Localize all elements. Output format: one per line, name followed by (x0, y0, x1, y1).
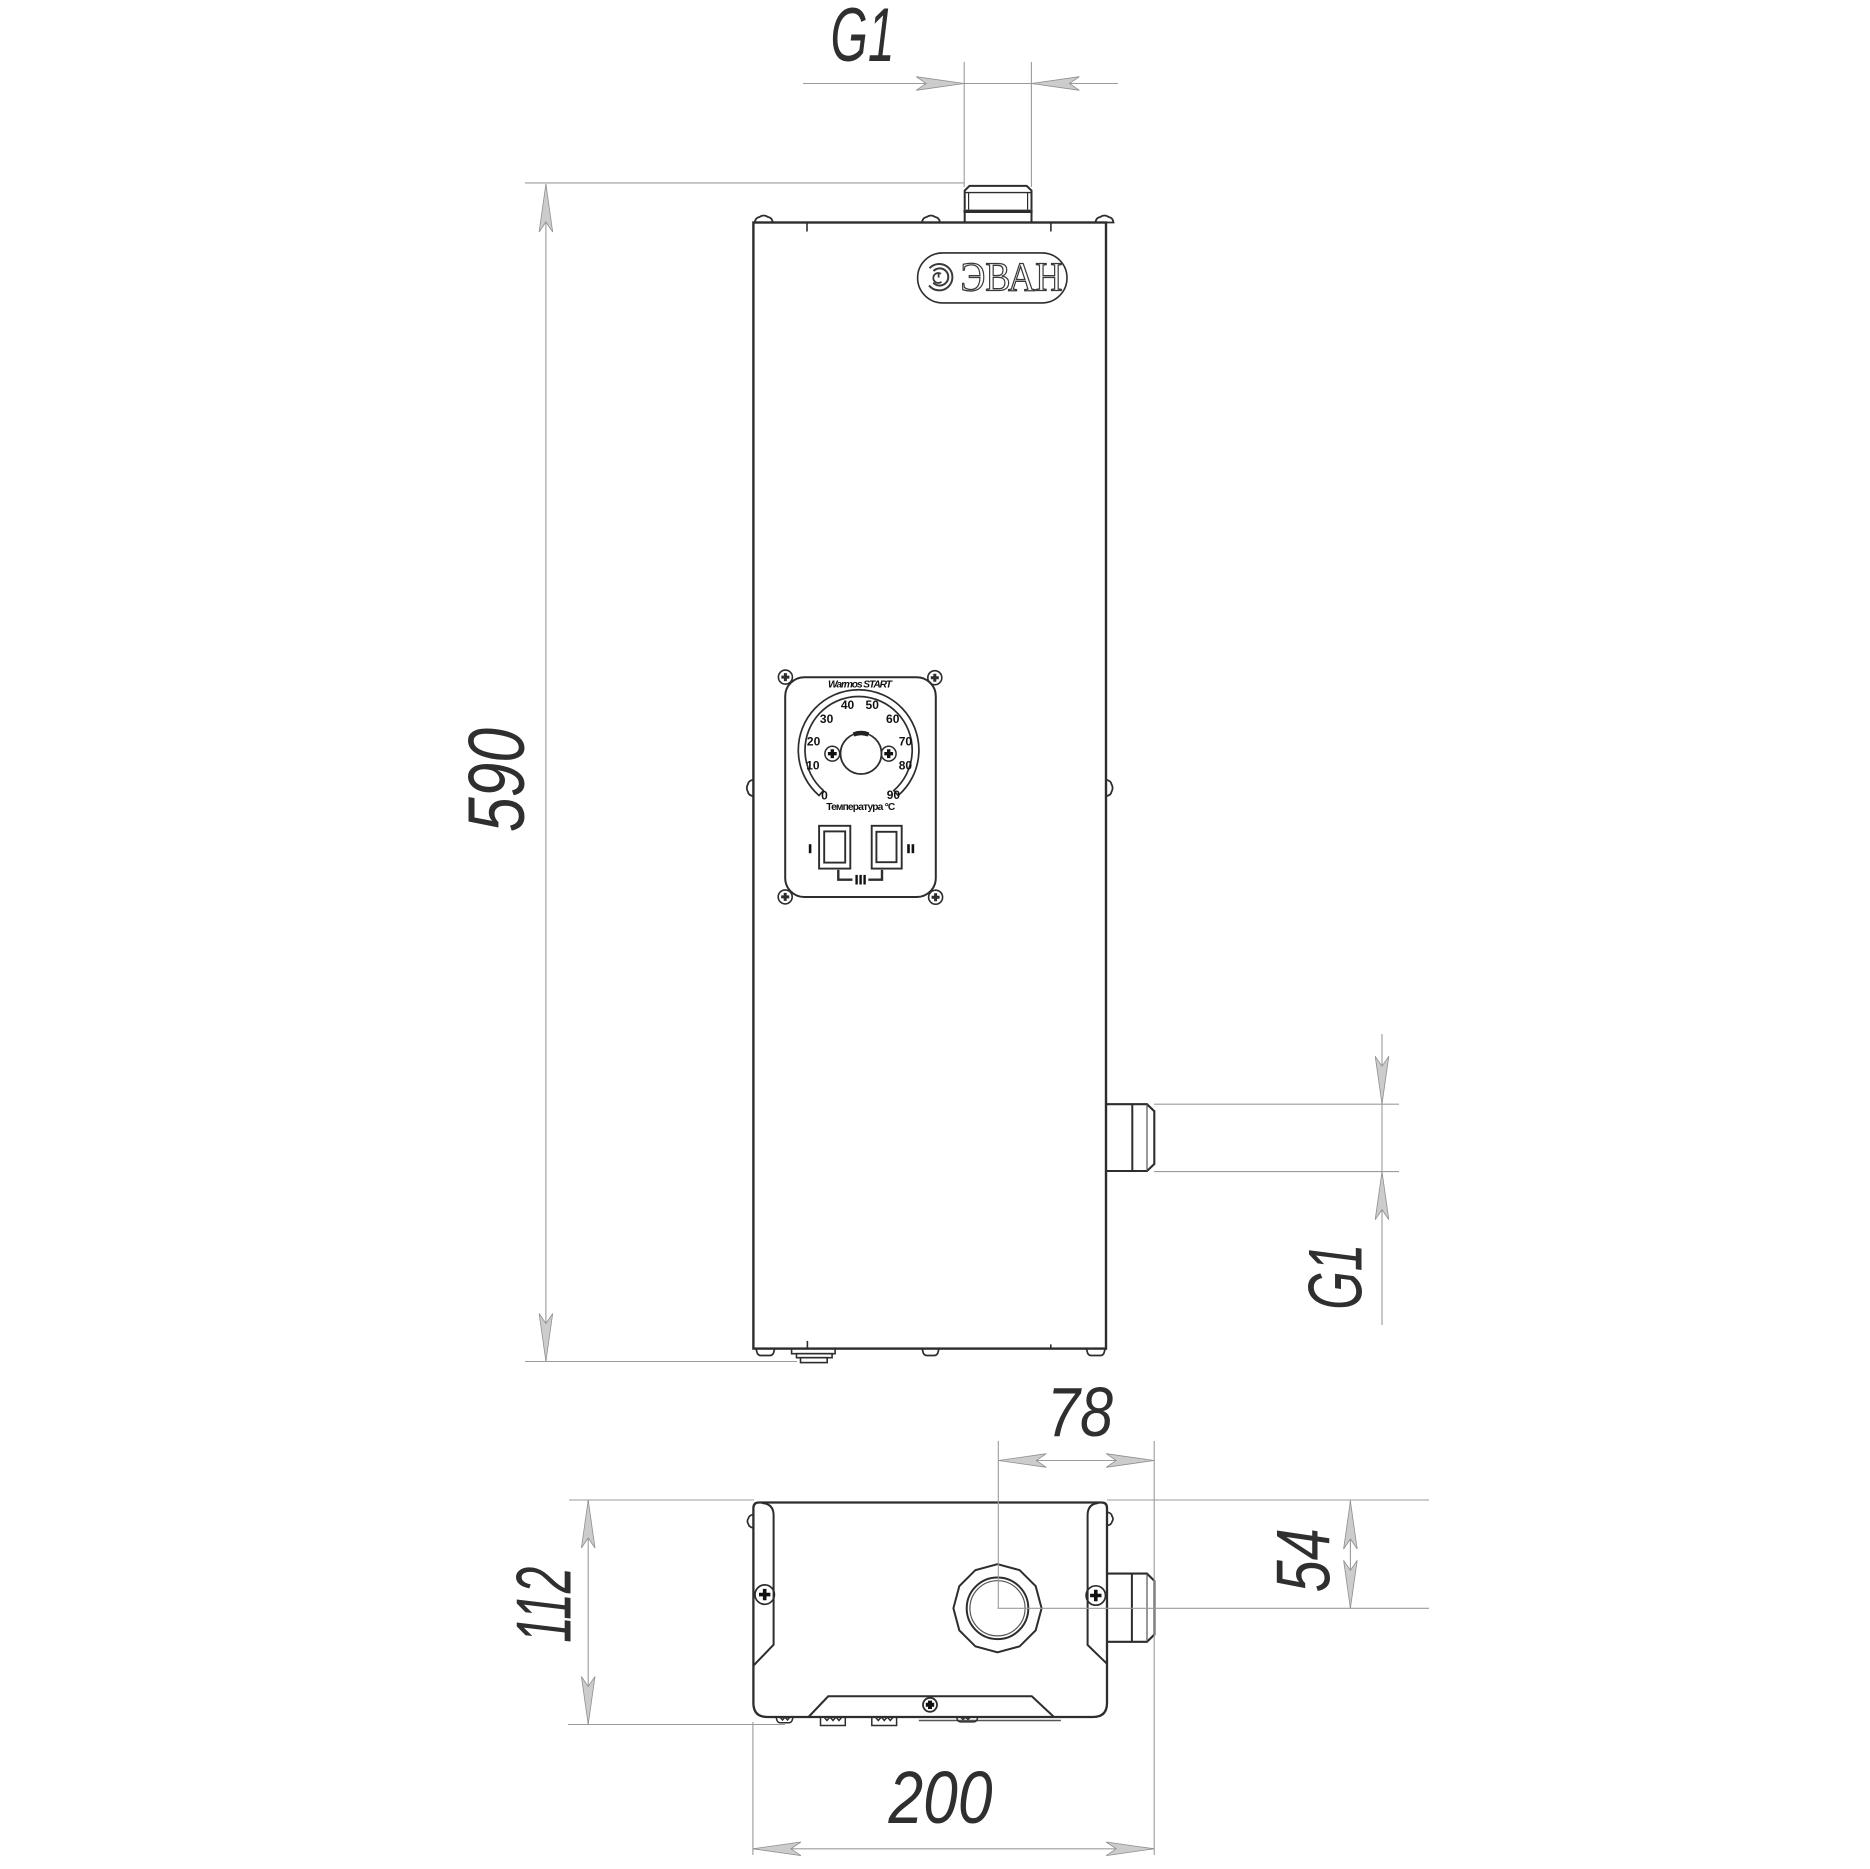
svg-text:54: 54 (1262, 1528, 1347, 1592)
svg-text:90: 90 (887, 788, 901, 802)
svg-text:Warmos START: Warmos START (828, 680, 893, 691)
svg-text:112: 112 (500, 1567, 588, 1643)
svg-text:70: 70 (899, 735, 913, 749)
svg-text:G1: G1 (831, 0, 895, 78)
svg-text:Температура °C: Температура °C (826, 802, 896, 813)
svg-text:78: 78 (1047, 1373, 1113, 1451)
svg-text:0: 0 (821, 789, 828, 803)
svg-text:30: 30 (820, 712, 834, 726)
svg-text:50: 50 (866, 698, 880, 712)
svg-text:200: 200 (888, 1756, 993, 1839)
svg-text:60: 60 (886, 712, 900, 726)
svg-text:20: 20 (807, 735, 821, 749)
svg-text:ЭВАН: ЭВАН (961, 254, 1063, 300)
svg-text:40: 40 (841, 698, 855, 712)
svg-text:G1: G1 (1293, 1244, 1378, 1310)
svg-text:10: 10 (806, 759, 820, 773)
svg-text:80: 80 (899, 759, 913, 773)
svg-text:590: 590 (452, 728, 541, 832)
